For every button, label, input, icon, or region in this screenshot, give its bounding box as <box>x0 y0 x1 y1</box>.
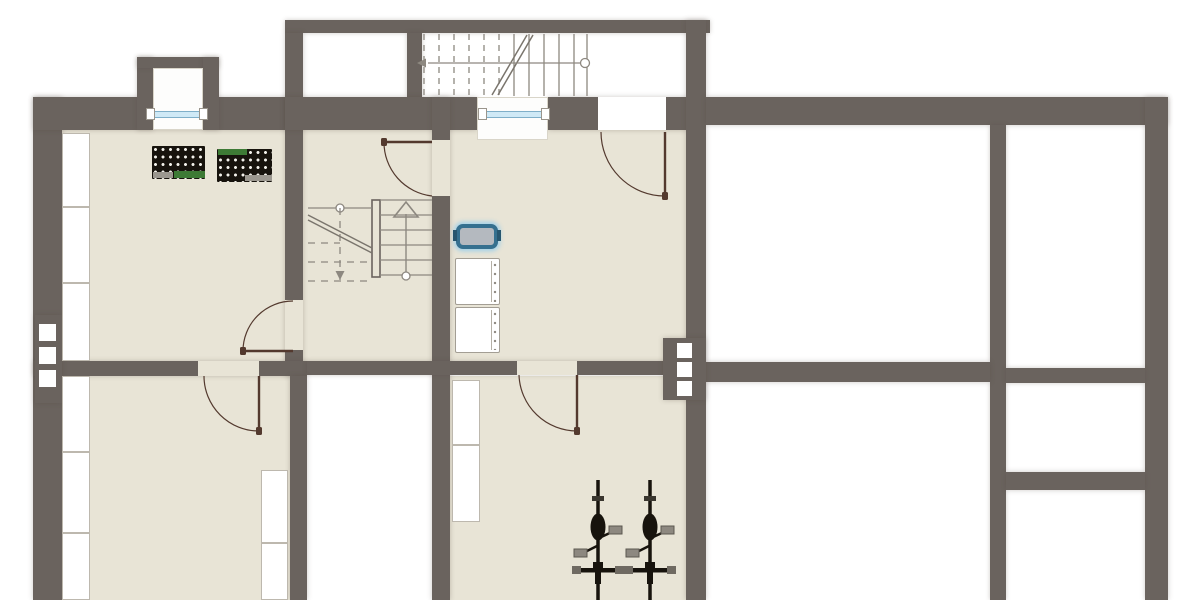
exterior-staircase-cut-line <box>492 35 527 95</box>
entrance-door-handle-dot <box>662 192 668 200</box>
interior-staircase-shaft-post <box>402 272 410 280</box>
bicycle-1-pedal-right <box>609 526 622 534</box>
floor-plan <box>0 0 1200 600</box>
plan-symbols-layer <box>0 0 1200 600</box>
bicycle-1-fork <box>595 572 601 584</box>
interior-staircase-down-arrow <box>336 271 345 280</box>
exterior-staircase-start-post <box>581 59 590 68</box>
exterior-staircase-down-arrow <box>417 59 426 68</box>
bicycle-2-fork <box>647 572 653 584</box>
entrance-door-swing-arc <box>601 132 665 196</box>
door-hall-laundry-handle-dot <box>381 138 387 146</box>
bicycle-1 <box>572 480 624 600</box>
bicycle-2-rack <box>644 496 656 501</box>
bicycle-2-grip-right <box>667 566 676 574</box>
interior-staircase-stringer <box>372 200 380 277</box>
door-hall-laundry-swing-arc <box>384 142 432 196</box>
bicycle-2-pedal-right <box>661 526 674 534</box>
door-laundry-bikes-handle-dot <box>574 427 580 435</box>
bicycle-1-grip-right <box>615 566 624 574</box>
door-hobby-storage-swing-arc <box>204 376 259 431</box>
bicycle-1-pedal-left <box>574 549 587 557</box>
bicycle-1-grip-left <box>572 566 581 574</box>
bicycle-1-stem <box>593 562 603 568</box>
bicycle-2-grip-left <box>624 566 633 574</box>
bicycle-1-rack <box>592 496 604 501</box>
exterior-staircase-cut-line <box>498 35 533 95</box>
bicycle-2-stem <box>645 562 655 568</box>
bicycle-2-pedal-left <box>626 549 639 557</box>
bicycle-2 <box>624 480 676 600</box>
door-hall-hobby-swing-arc <box>243 301 293 351</box>
door-hobby-storage-handle-dot <box>256 427 262 435</box>
door-hall-hobby-handle-dot <box>240 347 246 355</box>
door-laundry-bikes-swing-arc <box>519 375 577 431</box>
